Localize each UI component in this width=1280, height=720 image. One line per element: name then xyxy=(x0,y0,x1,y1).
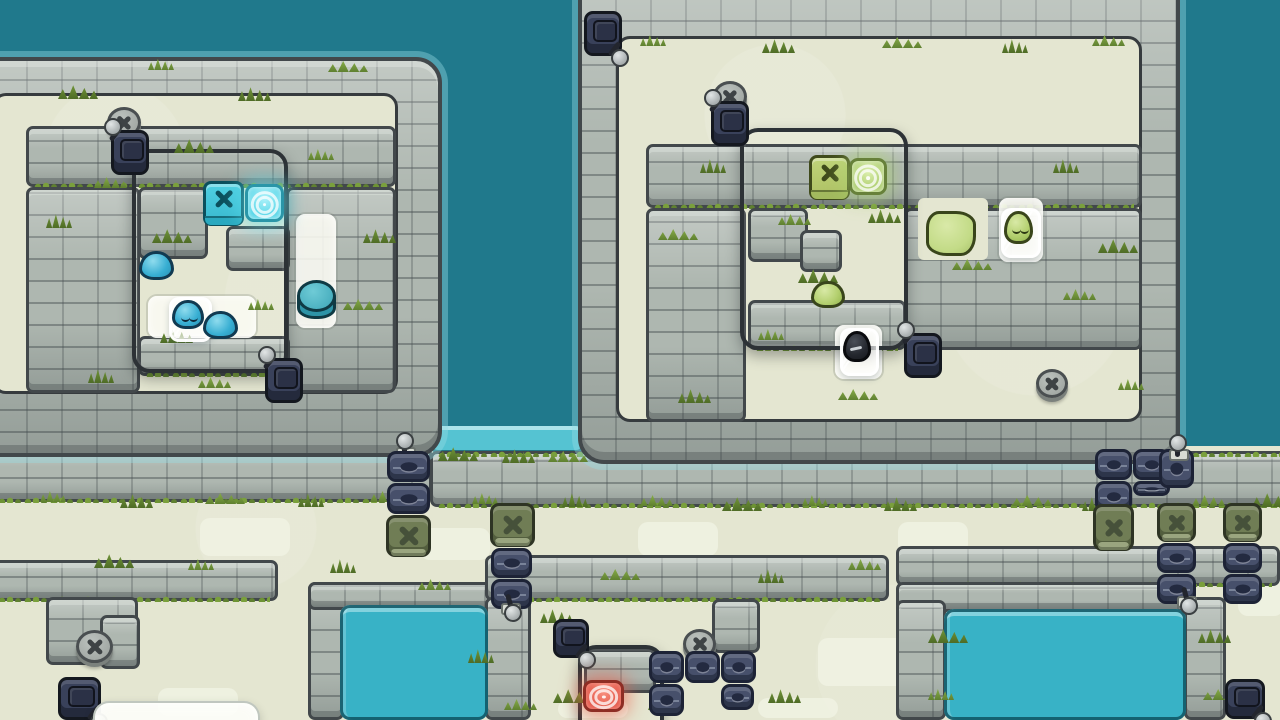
button-pad-red[interactable] xyxy=(583,680,624,712)
gate-block-navy[interactable] xyxy=(649,684,684,716)
lever-handle[interactable] xyxy=(258,349,280,373)
lever-switch-box[interactable] xyxy=(265,358,303,403)
slime-blob-green[interactable] xyxy=(1004,211,1033,244)
stone-wall xyxy=(26,187,140,393)
gate-block-navy[interactable] xyxy=(387,483,430,514)
lever-handle[interactable] xyxy=(605,39,627,63)
lever-switch-box[interactable] xyxy=(1225,679,1265,719)
lever-switch-box[interactable] xyxy=(553,619,589,658)
stone-wall xyxy=(1184,597,1226,720)
gate-dot xyxy=(400,462,417,472)
gate-dot xyxy=(1235,584,1250,593)
game-canvas[interactable]: Stone ruins tile puzzle level - two wall… xyxy=(0,0,1280,720)
gate-lip xyxy=(1228,534,1257,541)
x-button-disc[interactable] xyxy=(1036,369,1068,398)
lever-handle[interactable] xyxy=(704,92,726,116)
slime-blob-blue[interactable] xyxy=(172,300,204,329)
gate-lip xyxy=(391,549,425,556)
x-mark-icon xyxy=(206,184,241,214)
gate-lip xyxy=(1098,542,1129,550)
lever-d[interactable] xyxy=(498,592,520,616)
gate-lip xyxy=(495,538,529,546)
target-pad-icon xyxy=(263,203,267,207)
gate-block-navy[interactable] xyxy=(1223,574,1262,604)
lever-handle[interactable] xyxy=(897,324,919,348)
lever-switch-box[interactable] xyxy=(111,130,149,175)
stone-wall xyxy=(646,208,746,422)
cube-lip xyxy=(205,216,242,225)
lever-handle[interactable] xyxy=(104,121,126,145)
white-rounded-panel xyxy=(93,701,260,720)
push-cube-teal[interactable] xyxy=(203,181,244,226)
button-pad-teal[interactable] xyxy=(245,184,284,222)
gate-dot xyxy=(503,558,519,567)
gate-dot xyxy=(1235,553,1250,562)
gate-dot xyxy=(660,695,673,705)
push-cube-green[interactable] xyxy=(809,155,850,200)
gate-block-navy[interactable] xyxy=(1157,543,1196,573)
lever-u[interactable] xyxy=(1166,438,1188,462)
stone-wall-band xyxy=(485,555,889,601)
shine-icon xyxy=(850,346,863,351)
gate-block-olive[interactable] xyxy=(1157,503,1196,542)
gate-dot xyxy=(1106,460,1120,470)
ground-patch xyxy=(200,518,290,556)
lever-switch-box[interactable] xyxy=(584,11,622,56)
stone-wall xyxy=(896,600,946,720)
cylinder-top xyxy=(297,280,336,312)
lever-handle[interactable] xyxy=(572,641,594,665)
slime-blob-blue[interactable] xyxy=(139,251,174,280)
slime-boulder[interactable] xyxy=(926,211,976,256)
gate-dot xyxy=(660,662,673,672)
cube-lip xyxy=(811,190,848,199)
closed-eye-icon xyxy=(1020,226,1029,234)
x-button-disc[interactable] xyxy=(76,630,113,663)
gate-dot xyxy=(732,662,745,672)
gate-block-olive[interactable] xyxy=(1223,503,1262,542)
gate-block-navy[interactable] xyxy=(685,651,720,683)
gate-dot xyxy=(400,494,417,504)
lever-switch-box[interactable] xyxy=(904,333,942,378)
gate-block-navy[interactable] xyxy=(491,548,532,578)
gate-dot xyxy=(1106,492,1120,502)
target-pad-icon xyxy=(866,176,870,180)
stone-wall-band xyxy=(0,560,278,601)
gate-block-navy[interactable] xyxy=(721,684,754,710)
stone-wall xyxy=(712,599,760,653)
gate-block-olive[interactable] xyxy=(386,515,431,557)
lever-handle[interactable] xyxy=(1248,702,1270,720)
ground-patch xyxy=(638,522,718,556)
x-mark-icon xyxy=(79,633,110,660)
gate-block-olive[interactable] xyxy=(1093,504,1134,551)
closed-eye-icon xyxy=(189,314,198,322)
water-pool xyxy=(340,605,488,720)
gate-dot xyxy=(731,693,743,701)
x-mark-icon xyxy=(812,158,847,188)
gate-block-olive[interactable] xyxy=(490,503,535,547)
button-pad-green[interactable] xyxy=(849,158,887,195)
slime-blob-green[interactable] xyxy=(811,281,845,308)
gate-block-navy[interactable] xyxy=(1095,449,1132,480)
gate-block-navy[interactable] xyxy=(721,651,756,683)
slime-blob-blue[interactable] xyxy=(203,311,238,339)
ice-cube-frozen-blob-black[interactable] xyxy=(840,328,879,376)
gate-dot xyxy=(1170,462,1183,475)
gate-dot xyxy=(1144,460,1158,470)
gate-dot xyxy=(696,662,709,672)
gate-lip xyxy=(1162,534,1191,541)
gate-block-navy[interactable] xyxy=(1223,543,1262,573)
ice-cube-frozen-blob-green[interactable] xyxy=(1001,208,1041,258)
lever-d[interactable] xyxy=(1174,585,1196,609)
water-pool xyxy=(944,609,1186,720)
gate-dot xyxy=(1169,553,1184,562)
lever-switch-box[interactable] xyxy=(711,101,749,146)
gate-block-navy[interactable] xyxy=(387,451,430,482)
closed-eye-icon xyxy=(181,314,190,322)
cylinder-button[interactable] xyxy=(297,280,336,319)
x-mark-icon xyxy=(1039,372,1065,395)
gate-block-navy[interactable] xyxy=(649,651,684,683)
